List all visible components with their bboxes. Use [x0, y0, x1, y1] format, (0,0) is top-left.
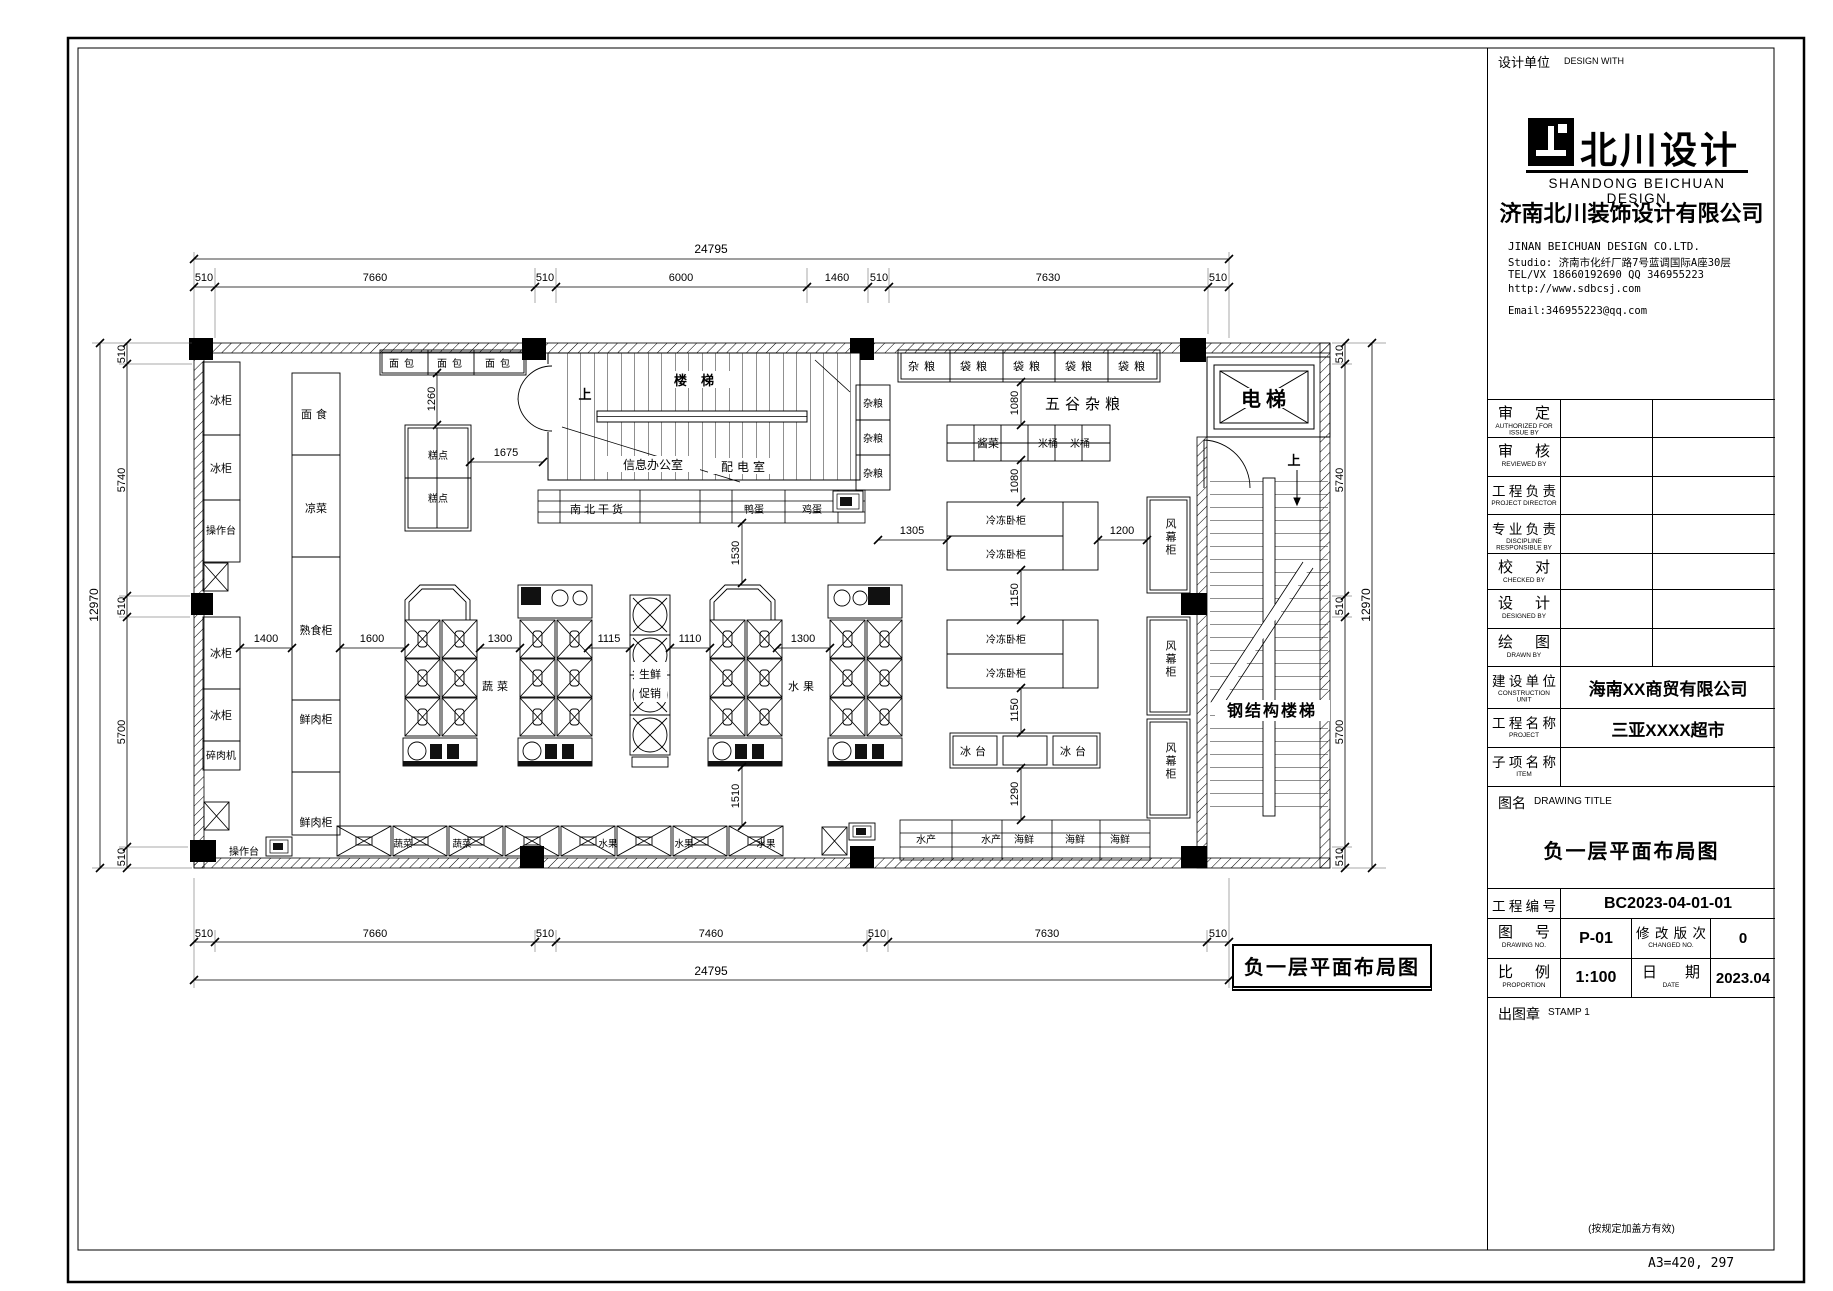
- row-label: 绘图: [1488, 629, 1560, 652]
- fixture-label: 水果: [756, 838, 776, 850]
- row-label: 专业负责: [1488, 515, 1560, 538]
- svg-text:510: 510: [870, 272, 888, 284]
- fixture-label: 袋粮: [1013, 359, 1045, 373]
- fixture-label: 冰柜: [210, 462, 232, 475]
- contact-line: TEL/VX 18660192690 QQ 346955223: [1508, 269, 1704, 281]
- island-vegetable-2: [518, 585, 592, 766]
- fixture-label: 杂粮: [863, 397, 883, 410]
- room-label: 钢结构楼梯: [1227, 701, 1317, 720]
- row-label-en: DESIGNED BY: [1491, 613, 1557, 619]
- island-promo: [630, 595, 670, 767]
- svg-text:7630: 7630: [1035, 928, 1059, 940]
- sign-field: [1560, 477, 1652, 514]
- paper-size-note: A3=420, 297: [1648, 1256, 1734, 1271]
- svg-text:510: 510: [195, 272, 213, 284]
- svg-text:510: 510: [536, 272, 554, 284]
- row-label-en: REVIEWED BY: [1491, 461, 1557, 467]
- row-label: 工程名称: [1488, 709, 1560, 732]
- fixture-label: 冰柜: [210, 647, 232, 660]
- sign-field: [1560, 629, 1652, 666]
- svg-text:510: 510: [1209, 928, 1227, 940]
- steel-staircase: [1210, 470, 1330, 816]
- fixture-label: 袋粮: [960, 359, 992, 373]
- row-label: 日期: [1632, 959, 1710, 982]
- zone-label: 水果: [788, 680, 818, 693]
- fixture-label: 海鲜: [1014, 833, 1034, 846]
- date-value: 2023.04: [1710, 959, 1775, 997]
- svg-text:7660: 7660: [363, 928, 387, 940]
- row-label-en: CHECKED BY: [1491, 577, 1557, 583]
- sink-box: [203, 563, 228, 591]
- website: http://www.sdbcsj.com: [1508, 283, 1641, 295]
- drawing-title-label-en: DRAWING TITLE: [1534, 796, 1612, 807]
- svg-text:1080: 1080: [1009, 469, 1021, 493]
- zone-label: 五谷杂粮: [1045, 396, 1125, 413]
- fixture-label: 鲜肉柜: [300, 815, 333, 829]
- fixture-label: 冷冻卧柜: [986, 667, 1026, 680]
- row-label: 设计: [1488, 590, 1560, 613]
- design-with-label-en: DESIGN WITH: [1564, 56, 1624, 66]
- drawing-title-section: 图名 DRAWING TITLE 负一层平面布局图: [1488, 786, 1775, 888]
- sign-field: [1560, 400, 1652, 437]
- row-label: 工程编号: [1488, 889, 1560, 915]
- svg-text:1300: 1300: [488, 633, 512, 645]
- svg-text:5700: 5700: [1334, 720, 1346, 744]
- row-label: 比例: [1488, 959, 1560, 982]
- design-with-label: 设计单位: [1498, 52, 1550, 71]
- svg-text:1150: 1150: [1009, 698, 1021, 722]
- island-vegetable-1: [403, 585, 477, 766]
- sign-row: 专业负责DISCIPLINE RESPONSIBLE BY: [1488, 514, 1775, 553]
- fixture-label: 水果: [598, 838, 618, 850]
- svg-text:1115: 1115: [598, 633, 621, 645]
- row-label-en: DRAWN BY: [1491, 652, 1557, 658]
- fixture-label: 碎肉机: [206, 749, 236, 762]
- row-label-en: DISCIPLINE RESPONSIBLE BY: [1491, 539, 1557, 552]
- sign-row: 绘图DRAWN BY: [1488, 628, 1775, 666]
- row-label: 审核: [1488, 438, 1560, 461]
- fixture-label: 杂粮: [908, 359, 940, 373]
- room-label: 楼梯: [674, 373, 728, 388]
- svg-text:1150: 1150: [1009, 583, 1021, 607]
- up-arrow-label: 上: [1287, 453, 1300, 468]
- svg-text:510: 510: [116, 597, 128, 615]
- svg-text:1530: 1530: [730, 541, 742, 565]
- row-label: 修改版次: [1632, 919, 1710, 942]
- zone-label: 生鲜: [639, 667, 661, 681]
- zone-label: 促销: [639, 686, 661, 700]
- fixture-label: 酱菜: [977, 436, 999, 450]
- drawing-no-row: 图号DRAWING NO. P-01 修改版次CHANGED NO. 0: [1488, 918, 1775, 958]
- fixture-label: 糕点: [428, 492, 448, 505]
- row-label: 工程负责: [1488, 477, 1560, 500]
- sign-row: 审定AUTHORIZED FOR ISSUE BY: [1488, 399, 1775, 437]
- sign-field: [1652, 554, 1775, 589]
- sign-row: 校对CHECKED BY: [1488, 553, 1775, 589]
- project-name-value: 三亚XXXX超市: [1560, 709, 1775, 747]
- fixture-label: 冷冻卧柜: [986, 514, 1026, 527]
- row-label-en: PROJECT: [1491, 732, 1557, 738]
- company-name-en: JINAN BEICHUAN DESIGN CO.LTD.: [1508, 240, 1700, 253]
- row-label: 子项名称: [1488, 748, 1560, 771]
- room-label: 信息办公室: [623, 457, 683, 472]
- dim-total-top: 24795: [694, 242, 728, 256]
- fixture-label: 海鲜: [1065, 833, 1085, 846]
- fixture-label: 面包: [485, 357, 515, 370]
- scale-station-icon: [266, 837, 292, 856]
- scale-station-icon: [849, 823, 875, 840]
- svg-text:510: 510: [116, 848, 128, 866]
- sign-field: [1652, 590, 1775, 628]
- pastry-shelf: [405, 425, 471, 531]
- svg-text:510: 510: [195, 928, 213, 940]
- drawing-title-label: 图名: [1498, 793, 1526, 813]
- fixture-label: 鸭蛋: [744, 503, 764, 516]
- stamp-label: 出图章: [1498, 1004, 1540, 1024]
- construction-unit-value: 海南XX商贸有限公司: [1560, 667, 1775, 708]
- item-name-row: 子项名称ITEM: [1488, 747, 1775, 786]
- svg-text:510: 510: [1334, 597, 1346, 615]
- row-label: 建设单位: [1488, 667, 1560, 690]
- row-label: 图号: [1488, 919, 1560, 942]
- island-endcap: [828, 738, 902, 766]
- fixture-label: 冷冻卧柜: [986, 548, 1026, 561]
- brand-name: 北川设计: [1580, 120, 1740, 174]
- project-no-row: 工程编号 BC2023-04-01-01: [1488, 888, 1775, 918]
- project-name-row: 工程名称PROJECT 三亚XXXX超市: [1488, 708, 1775, 747]
- island-fruit-2: [828, 585, 902, 766]
- svg-text:1675: 1675: [494, 447, 518, 459]
- dim-total-bottom: 24795: [694, 964, 728, 978]
- up-arrow-label: 上: [578, 387, 591, 402]
- fixture-label: 面食: [301, 407, 331, 421]
- sign-field: [1560, 438, 1652, 476]
- row-label-en: AUTHORIZED FOR ISSUE BY: [1491, 424, 1557, 437]
- fixture-label: 操作台: [229, 845, 259, 858]
- fixture-label: 糕点: [428, 449, 448, 462]
- fixture-label: 南北干货: [570, 502, 626, 516]
- fixture-label: 蔬菜: [393, 838, 413, 850]
- svg-text:5740: 5740: [1334, 468, 1346, 492]
- beichuan-logo-icon: [1528, 118, 1574, 166]
- svg-text:1080: 1080: [1009, 391, 1021, 415]
- fixture-label: 冰台: [1060, 744, 1090, 758]
- row-label: 审定: [1488, 400, 1560, 423]
- fixture-label: 海鲜: [1110, 833, 1130, 846]
- fixture-label: 凉菜: [305, 501, 327, 515]
- fixture-label: 冰柜: [210, 709, 232, 722]
- svg-text:1510: 1510: [730, 784, 742, 808]
- sign-field: [1560, 515, 1652, 553]
- fixture-label: 杂粮: [863, 467, 883, 480]
- sign-row: 审核REVIEWED BY: [1488, 437, 1775, 476]
- scale-date-row: 比例PROPORTION 1:100 日期DATE 2023.04: [1488, 958, 1775, 997]
- svg-text:1260: 1260: [426, 387, 438, 411]
- row-label-en: CHANGED NO.: [1635, 942, 1707, 948]
- svg-text:7660: 7660: [363, 272, 387, 284]
- island-endcap: [518, 738, 592, 766]
- svg-text:510: 510: [1334, 848, 1346, 866]
- row-label-en: DATE: [1635, 982, 1707, 988]
- sign-field: [1652, 515, 1775, 553]
- fixture-label: 冷冻卧柜: [986, 633, 1026, 646]
- title-block: 设计单位 DESIGN WITH 北川设计 SHANDONG BEICHUAN …: [1487, 48, 1774, 1250]
- sign-field: [1652, 629, 1775, 666]
- fixture-label: 鸡蛋: [802, 503, 822, 516]
- stamp-section: 出图章 STAMP 1 (按规定加盖方有效): [1488, 997, 1775, 1250]
- fixture-label: 水产: [916, 833, 936, 846]
- island-endcap: [708, 738, 782, 766]
- zone-label: 蔬菜: [482, 680, 512, 693]
- brand-rule: [1526, 170, 1748, 173]
- row-label-en: PROPORTION: [1491, 982, 1557, 988]
- sign-row: 工程负责PROJECT DIRECTOR: [1488, 476, 1775, 514]
- room-label: 配电室: [721, 459, 769, 474]
- sign-row: 设计DESIGNED BY: [1488, 589, 1775, 628]
- stamp-label-en: STAMP 1: [1548, 1007, 1590, 1018]
- drawing-title-value: 负一层平面布局图: [1488, 835, 1775, 864]
- fixture-label: 面包: [389, 357, 419, 370]
- fixture-label: 米桶: [1070, 437, 1090, 450]
- fixture-label: 袋粮: [1065, 359, 1097, 373]
- item-name-value: [1560, 748, 1775, 786]
- email: Email:346955223@qq.com: [1508, 305, 1647, 317]
- fixture-label: 熟食柜: [300, 623, 333, 637]
- svg-text:7460: 7460: [699, 928, 723, 940]
- scale-value: 1:100: [1560, 959, 1631, 997]
- fixture-label: 袋粮: [1118, 359, 1150, 373]
- fixture-label: 冰柜: [210, 394, 232, 407]
- project-no-value: BC2023-04-01-01: [1560, 889, 1775, 918]
- fixture-label: 冰台: [960, 744, 990, 758]
- fixture-label: 鲜肉柜: [300, 712, 333, 726]
- fixture-label: 风幕柜: [1162, 518, 1178, 557]
- svg-text:1200: 1200: [1110, 525, 1134, 537]
- island-fruit-1: [708, 585, 782, 766]
- svg-text:12970: 12970: [87, 588, 101, 622]
- room-label: 电梯: [1241, 387, 1291, 411]
- row-label-en: CONSTRUCTION UNIT: [1491, 691, 1557, 704]
- stamp-note: (按规定加盖方有效): [1488, 1220, 1775, 1235]
- svg-text:5700: 5700: [116, 720, 128, 744]
- sign-field: [1560, 590, 1652, 628]
- fixture-label: 操作台: [206, 524, 236, 537]
- fixture-label: 面包: [437, 357, 467, 370]
- svg-text:7630: 7630: [1036, 272, 1060, 284]
- svg-text:1460: 1460: [825, 272, 849, 284]
- sign-field: [1652, 400, 1775, 437]
- construction-unit-row: 建设单位CONSTRUCTION UNIT 海南XX商贸有限公司: [1488, 666, 1775, 708]
- row-label-en: PROJECT DIRECTOR: [1491, 500, 1557, 506]
- svg-text:6000: 6000: [669, 272, 693, 284]
- fixture-label: 水产: [981, 833, 1001, 846]
- svg-text:12970: 12970: [1359, 588, 1373, 622]
- fixture-label: 水果: [674, 838, 694, 850]
- fixture-label: 杂粮: [863, 432, 883, 445]
- svg-text:1305: 1305: [900, 525, 924, 537]
- fixture-label: 风幕柜: [1162, 640, 1178, 679]
- company-name: 济南北川装饰设计有限公司: [1488, 196, 1775, 228]
- fixture-label: 米桶: [1038, 437, 1058, 450]
- svg-text:1110: 1110: [679, 633, 702, 645]
- left-wall-fixtures: [203, 362, 240, 770]
- sign-field: [1652, 477, 1775, 514]
- svg-text:5740: 5740: [116, 468, 128, 492]
- svg-text:510: 510: [868, 928, 886, 940]
- svg-text:1600: 1600: [360, 633, 384, 645]
- plan-caption: 负一层平面布局图: [1232, 944, 1432, 991]
- row-label-en: ITEM: [1491, 771, 1557, 777]
- fixture-label: 蔬菜: [452, 838, 472, 850]
- island-endcap: [403, 738, 477, 766]
- studio-address: Studio: 济南市化纤厂路7号蓝调国际A座30层: [1508, 255, 1731, 270]
- svg-text:1300: 1300: [791, 633, 815, 645]
- svg-text:510: 510: [116, 345, 128, 363]
- center-counter: [292, 373, 340, 835]
- svg-text:510: 510: [1334, 345, 1346, 363]
- row-label-en: DRAWING NO.: [1491, 942, 1557, 948]
- scale-station-icon: [833, 491, 863, 512]
- drawing-no-value: P-01: [1560, 919, 1631, 958]
- sign-field: [1560, 554, 1652, 589]
- row-label: 校对: [1488, 554, 1560, 577]
- svg-text:1400: 1400: [254, 633, 278, 645]
- sign-field: [1652, 438, 1775, 476]
- sink-box: [204, 802, 229, 830]
- svg-text:1290: 1290: [1009, 782, 1021, 806]
- svg-text:510: 510: [536, 928, 554, 940]
- svg-text:510: 510: [1209, 272, 1227, 284]
- revision-value: 0: [1710, 919, 1775, 958]
- fixture-label: 风幕柜: [1162, 742, 1178, 781]
